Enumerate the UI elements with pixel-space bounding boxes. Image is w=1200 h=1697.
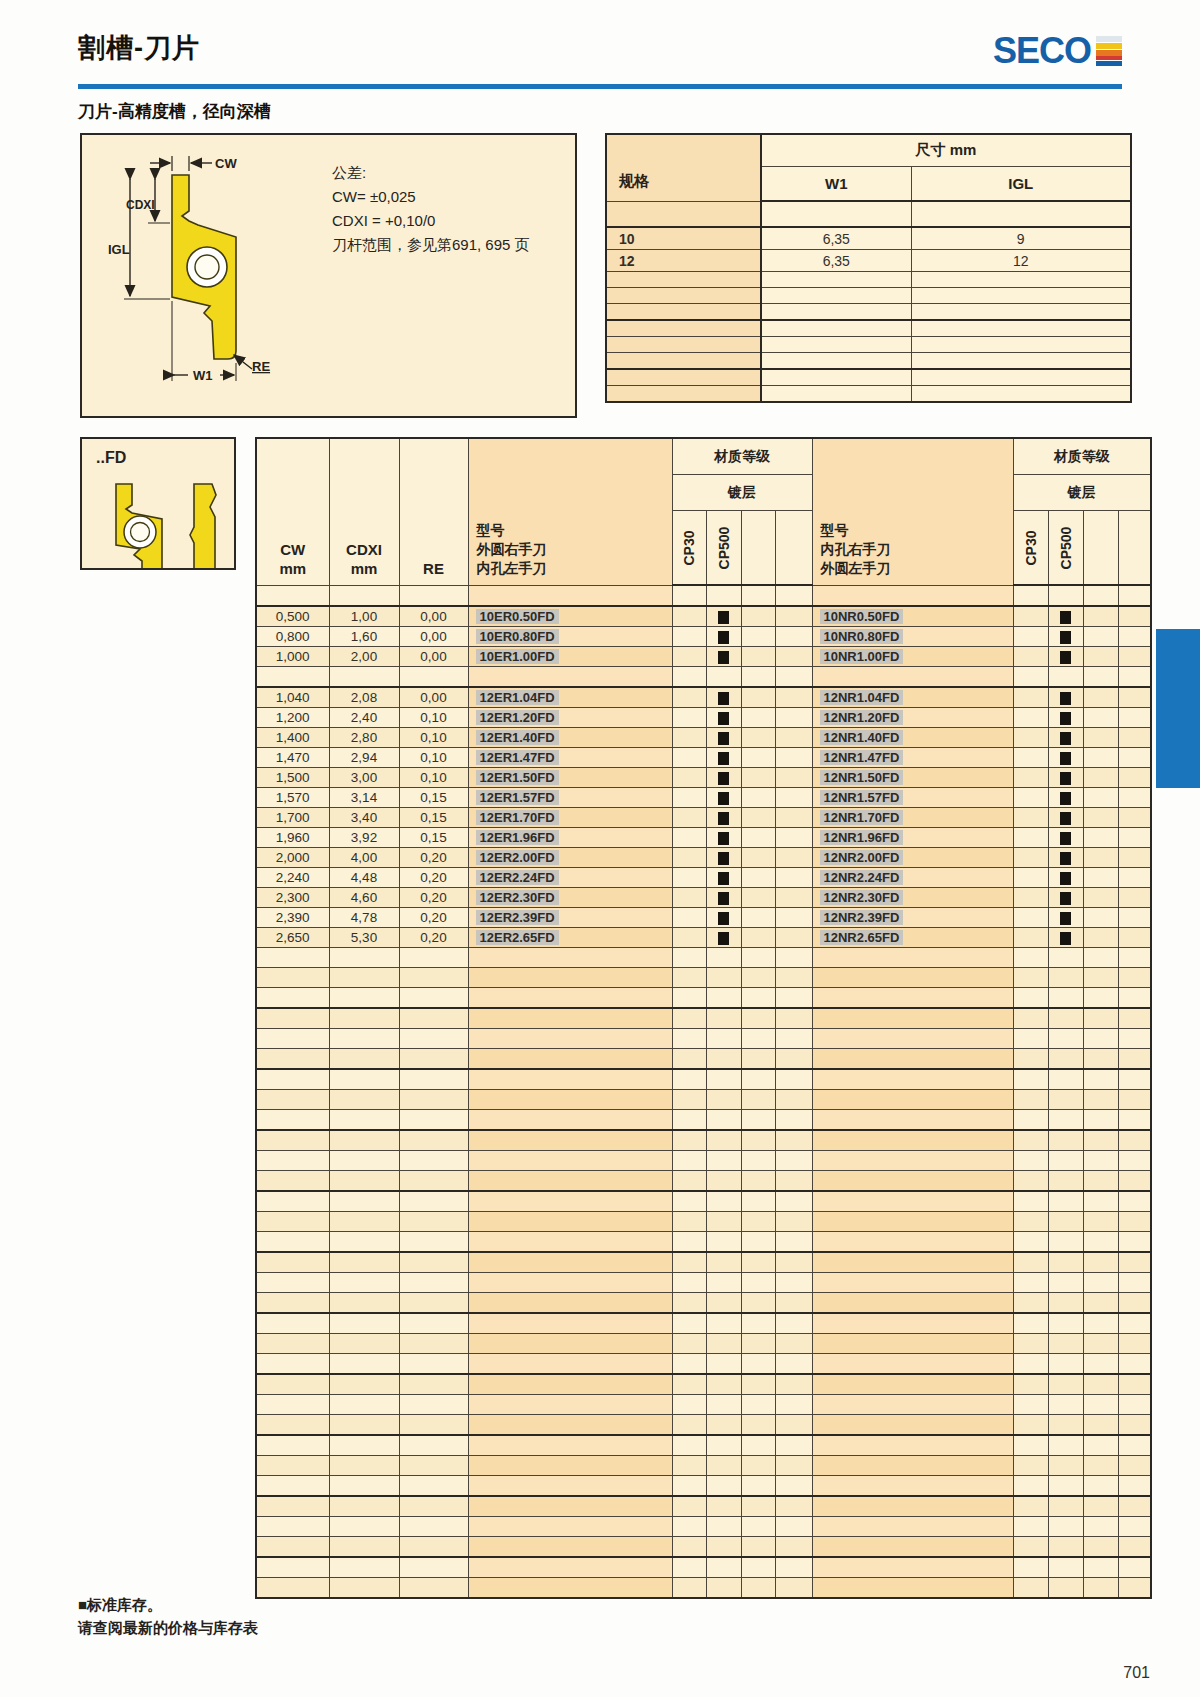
igl-cell <box>911 386 1131 403</box>
part-number-cell <box>812 1334 1013 1354</box>
footnote-line: ■标准库存。 <box>78 1593 258 1616</box>
grade-cell <box>1083 788 1118 808</box>
grade-cell <box>706 928 741 948</box>
grade-cell <box>706 988 741 1009</box>
part-number: 12ER2.65FD <box>476 930 559 945</box>
value-cell <box>256 1415 329 1436</box>
stock-square-icon <box>718 631 729 644</box>
part-number-cell: 12ER1.70FD <box>468 808 672 828</box>
grade-cell <box>672 1374 706 1395</box>
stock-square-icon <box>718 651 729 664</box>
grade-cell <box>672 1476 706 1497</box>
empty-row <box>256 1090 1151 1110</box>
value-cell: 0,20 <box>399 888 468 908</box>
grade-cell <box>672 1313 706 1334</box>
stock-square-icon <box>718 611 729 624</box>
grade-cell <box>706 1395 741 1415</box>
stock-square-icon <box>718 852 729 865</box>
part-number-cell <box>468 1354 672 1375</box>
stock-square-icon <box>718 912 729 925</box>
grade-cell <box>706 968 741 988</box>
grade-cell <box>1048 1171 1083 1192</box>
part-number-cell: 12NR2.39FD <box>812 908 1013 928</box>
grade-cell <box>706 908 741 928</box>
part-number: 12NR1.04FD <box>820 690 904 705</box>
part-number-cell <box>812 1232 1013 1253</box>
value-cell <box>329 1578 399 1599</box>
grade-cell <box>741 808 775 828</box>
table-row: 126,3512 <box>606 250 1131 272</box>
grade-cell <box>1048 1354 1083 1375</box>
empty-row <box>256 1008 1151 1029</box>
value-cell: 1,700 <box>256 808 329 828</box>
grade-cell <box>1048 1456 1083 1476</box>
grade-cell <box>706 948 741 968</box>
grade-cell <box>706 848 741 868</box>
value-cell <box>399 1334 468 1354</box>
spec-cell: 10 <box>606 227 761 250</box>
svg-text:RE: RE <box>252 359 270 374</box>
grade-cell <box>672 1008 706 1029</box>
grade-cell <box>1118 1232 1151 1253</box>
grade-cell <box>672 1293 706 1314</box>
igl-cell <box>911 272 1131 288</box>
grade-cell <box>741 1069 775 1090</box>
page-title: 割槽-刀片 <box>78 30 200 66</box>
value-cell <box>329 1090 399 1110</box>
value-cell: 0,10 <box>399 708 468 728</box>
stock-square-icon <box>718 772 729 785</box>
grade-cell <box>1048 1374 1083 1395</box>
grade-cell <box>672 908 706 928</box>
part-number-cell <box>812 667 1013 688</box>
part-number: 12NR1.96FD <box>820 830 904 845</box>
part-number-cell <box>812 1212 1013 1232</box>
part-number-cell <box>468 1130 672 1151</box>
grade-cell <box>1013 1049 1048 1070</box>
part-number: 10NR1.00FD <box>820 649 904 664</box>
grade-cell <box>1118 1090 1151 1110</box>
value-cell <box>399 1476 468 1497</box>
grade-cell <box>672 627 706 647</box>
grade-cell <box>1048 1313 1083 1334</box>
value-cell <box>399 1171 468 1192</box>
dimension-table: 规格 尺寸 mm W1 IGL 106,359126,3512 <box>605 133 1132 403</box>
grade-cell <box>1013 1374 1048 1395</box>
value-cell: 0,00 <box>399 647 468 667</box>
grade-cell <box>706 828 741 848</box>
grade-cell <box>672 1212 706 1232</box>
grade-cell <box>706 728 741 748</box>
part-number-cell: 12ER2.65FD <box>468 928 672 948</box>
grade-cell <box>1118 627 1151 647</box>
grade-cell <box>1048 768 1083 788</box>
part-number: 12ER2.30FD <box>476 890 559 905</box>
value-cell <box>329 1354 399 1375</box>
empty-row <box>606 353 1131 370</box>
grade-cell <box>775 1578 812 1599</box>
table-row: 2,3904,780,2012ER2.39FD12NR2.39FD <box>256 908 1151 928</box>
value-cell <box>399 667 468 688</box>
grade-cell <box>775 1435 812 1456</box>
grade-cell <box>1118 606 1151 627</box>
part-number: 12ER1.70FD <box>476 810 559 825</box>
value-cell <box>256 1110 329 1131</box>
part-number-cell: 10NR0.50FD <box>812 606 1013 627</box>
grade-cell <box>1118 1008 1151 1029</box>
grade-cell <box>741 687 775 708</box>
value-cell <box>256 667 329 688</box>
value-cell: 4,00 <box>329 848 399 868</box>
grade-cell <box>775 606 812 627</box>
grade-cell <box>775 988 812 1009</box>
part-number-cell <box>468 1578 672 1599</box>
value-cell <box>399 1191 468 1212</box>
value-cell <box>329 1212 399 1232</box>
grade-cell <box>672 1395 706 1415</box>
part-number-cell: 12ER1.47FD <box>468 748 672 768</box>
grade-cell <box>706 1110 741 1131</box>
part-number-cell <box>468 1537 672 1558</box>
empty-row <box>256 1049 1151 1070</box>
grade-cell <box>672 1354 706 1375</box>
value-cell <box>399 1517 468 1537</box>
empty-row <box>256 1069 1151 1090</box>
part-number-cell <box>468 1273 672 1293</box>
grade-cell <box>741 1435 775 1456</box>
value-cell <box>329 1008 399 1029</box>
grade-cell <box>706 708 741 728</box>
grade-cell <box>672 1090 706 1110</box>
value-cell: 4,60 <box>329 888 399 908</box>
grade-cell <box>741 1334 775 1354</box>
grade-cell <box>1083 687 1118 708</box>
table-row: 1,4002,800,1012ER1.40FD12NR1.40FD <box>256 728 1151 748</box>
value-cell <box>329 1029 399 1049</box>
grade-cell <box>1013 606 1048 627</box>
empty-row <box>256 585 1151 606</box>
grade-cell <box>1118 1171 1151 1192</box>
dimension-table-body: 106,359126,3512 <box>606 201 1131 402</box>
grade-cell <box>1118 1191 1151 1212</box>
grade-cell <box>1048 1415 1083 1436</box>
grade-cell <box>706 1456 741 1476</box>
table-row: 1,9603,920,1512ER1.96FD12NR1.96FD <box>256 828 1151 848</box>
table-row: 1,0402,080,0012ER1.04FD12NR1.04FD <box>256 687 1151 708</box>
part-number-cell <box>468 948 672 968</box>
value-cell <box>399 1313 468 1334</box>
part-number-cell <box>812 1354 1013 1375</box>
seco-logo-mark-icon <box>1096 36 1122 66</box>
grade-cell <box>706 1557 741 1578</box>
part-number-cell: 10ER0.80FD <box>468 627 672 647</box>
grade-cell <box>1118 1212 1151 1232</box>
grade-cell <box>1048 848 1083 868</box>
grade-cell <box>741 1090 775 1110</box>
part-number-cell <box>468 1110 672 1131</box>
empty-row <box>256 1496 1151 1517</box>
part-number: 12ER1.40FD <box>476 730 559 745</box>
part-number-cell <box>812 1456 1013 1476</box>
grade-cell <box>672 1435 706 1456</box>
grade-cell <box>1048 1069 1083 1090</box>
grade-cell <box>1048 1496 1083 1517</box>
part-number-cell: 12NR1.57FD <box>812 788 1013 808</box>
grade-cell <box>1083 868 1118 888</box>
grade-cell <box>775 948 812 968</box>
stock-square-icon <box>1060 852 1071 865</box>
value-cell: 1,570 <box>256 788 329 808</box>
grade-cell <box>1083 828 1118 848</box>
stock-square-icon <box>1060 792 1071 805</box>
grade-cell <box>672 1537 706 1558</box>
value-cell: 2,390 <box>256 908 329 928</box>
stock-square-icon <box>1060 832 1071 845</box>
grade-cell <box>775 1029 812 1049</box>
grade-cell <box>1083 768 1118 788</box>
part-number: 12NR1.70FD <box>820 810 904 825</box>
part-number-cell <box>812 1171 1013 1192</box>
grade-cell <box>775 1415 812 1436</box>
value-cell <box>256 1008 329 1029</box>
value-cell <box>399 1293 468 1314</box>
grade-cell <box>1083 948 1118 968</box>
grade-cell <box>741 748 775 768</box>
grade-cell <box>1013 1415 1048 1436</box>
grade-empty-header <box>775 511 812 586</box>
part-number-cell <box>468 1212 672 1232</box>
grade-cell <box>1118 728 1151 748</box>
value-cell: 2,240 <box>256 868 329 888</box>
value-cell <box>256 1212 329 1232</box>
grade-cell <box>1013 808 1048 828</box>
empty-row <box>256 1557 1151 1578</box>
grade-cell <box>672 1557 706 1578</box>
grade-cp30-header: CP30 <box>672 511 706 586</box>
value-cell <box>329 1476 399 1497</box>
grade-cell <box>706 1090 741 1110</box>
cdxi-column-header: CDXImm <box>329 438 399 585</box>
empty-row <box>256 1293 1151 1314</box>
value-cell: 0,20 <box>399 928 468 948</box>
value-cell <box>329 1171 399 1192</box>
stock-square-icon <box>718 792 729 805</box>
part-number-cell <box>468 1557 672 1578</box>
value-cell <box>399 988 468 1009</box>
igl-cell: 9 <box>911 227 1131 250</box>
grade-cell <box>741 988 775 1009</box>
grade-cell <box>1013 1293 1048 1314</box>
stock-square-icon <box>1060 892 1071 905</box>
grade-cell <box>1013 828 1048 848</box>
empty-row <box>256 1476 1151 1497</box>
grade-cell <box>1048 728 1083 748</box>
grade-cell <box>775 1069 812 1090</box>
grade-cell <box>741 1151 775 1171</box>
value-cell: 2,000 <box>256 848 329 868</box>
part-number-cell <box>812 1293 1013 1314</box>
grade-cell <box>775 647 812 667</box>
grade-cell <box>1048 1395 1083 1415</box>
value-cell <box>256 1090 329 1110</box>
grade-cell <box>1083 1557 1118 1578</box>
grade-cell <box>1083 988 1118 1009</box>
part-number-cell: 12NR2.65FD <box>812 928 1013 948</box>
value-cell: 1,60 <box>329 627 399 647</box>
stock-square-icon <box>718 712 729 725</box>
value-cell <box>399 1252 468 1273</box>
grade-cell <box>741 1293 775 1314</box>
grade-cell <box>1013 988 1048 1009</box>
grade-cell <box>1083 1110 1118 1131</box>
part-number-cell <box>812 1069 1013 1090</box>
grade-cell <box>775 1334 812 1354</box>
re-column-header: RE <box>399 438 468 585</box>
grade-cell <box>1013 928 1048 948</box>
grade-cell <box>1083 585 1118 606</box>
part-number: 12NR2.24FD <box>820 870 904 885</box>
grade-cell <box>706 1191 741 1212</box>
value-cell <box>256 585 329 606</box>
value-cell <box>256 1395 329 1415</box>
part-number-cell <box>468 1293 672 1314</box>
grade-group-header: 材质等级 <box>672 438 812 475</box>
stock-square-icon <box>718 732 729 745</box>
value-cell: 1,500 <box>256 768 329 788</box>
part-number-cell <box>468 1191 672 1212</box>
value-cell <box>329 1313 399 1334</box>
grade-cell <box>672 808 706 828</box>
grade-cell <box>741 1374 775 1395</box>
catalog-page: 割槽-刀片 SECO 刀片-高精度槽，径向深槽 <box>0 0 1200 1697</box>
grade-cell <box>706 647 741 667</box>
value-cell <box>399 1110 468 1131</box>
value-cell <box>329 1496 399 1517</box>
grade-cell <box>706 1476 741 1497</box>
part-number-cell <box>468 585 672 606</box>
value-cell <box>399 1090 468 1110</box>
grade-cell <box>1013 1212 1048 1232</box>
empty-row <box>606 288 1131 304</box>
grade-cell <box>1013 1151 1048 1171</box>
grade-cell <box>1013 687 1048 708</box>
grade-cell <box>1083 1049 1118 1070</box>
part-number-cell <box>468 1496 672 1517</box>
grade-cell <box>741 1191 775 1212</box>
grade-cell <box>741 948 775 968</box>
part-number-cell: 12ER2.39FD <box>468 908 672 928</box>
tolerance-line: 刀杆范围，参见第691, 695 页 <box>332 233 530 257</box>
grade-cell <box>741 788 775 808</box>
grade-cell <box>1118 988 1151 1009</box>
part-number-cell: 12NR1.50FD <box>812 768 1013 788</box>
grade-cell <box>706 1313 741 1334</box>
grade-cell <box>1013 768 1048 788</box>
grade-cell <box>1048 585 1083 606</box>
grade-cell <box>1083 1537 1118 1558</box>
table-row: 1,2002,400,1012ER1.20FD12NR1.20FD <box>256 708 1151 728</box>
igl-cell <box>911 369 1131 386</box>
grade-cell <box>672 708 706 728</box>
value-cell: 1,400 <box>256 728 329 748</box>
grade-cell <box>672 1110 706 1131</box>
part-number: 12NR2.65FD <box>820 930 904 945</box>
page-index-tab[interactable] <box>1156 629 1200 788</box>
part-number-cell: 12NR1.04FD <box>812 687 1013 708</box>
table-row: 1,5003,000,1012ER1.50FD12NR1.50FD <box>256 768 1151 788</box>
stock-square-icon <box>1060 692 1071 705</box>
grade-cell <box>775 1273 812 1293</box>
grade-cell <box>1013 788 1048 808</box>
part-number-cell: 12NR1.96FD <box>812 828 1013 848</box>
part-number: 12NR1.40FD <box>820 730 904 745</box>
value-cell <box>399 1578 468 1599</box>
grade-cell <box>1118 687 1151 708</box>
value-cell <box>256 1557 329 1578</box>
model-right-column-header: 型号 外圆右手刀 内孔左手刀 <box>468 438 672 585</box>
part-number-cell <box>468 1517 672 1537</box>
stock-square-icon <box>718 872 729 885</box>
value-cell <box>329 667 399 688</box>
table-row: 1,7003,400,1512ER1.70FD12NR1.70FD <box>256 808 1151 828</box>
part-number: 12NR2.39FD <box>820 910 904 925</box>
grade-cell <box>672 928 706 948</box>
part-number: 12ER1.20FD <box>476 710 559 725</box>
stock-square-icon <box>718 812 729 825</box>
grade-cell <box>706 808 741 828</box>
empty-row <box>256 1456 1151 1476</box>
grade-cell <box>672 988 706 1009</box>
grade-cell <box>741 1354 775 1375</box>
part-number-cell <box>812 1435 1013 1456</box>
grade-cell <box>1083 1232 1118 1253</box>
value-cell <box>399 1557 468 1578</box>
grade-cell <box>775 1212 812 1232</box>
grade-cell <box>741 1456 775 1476</box>
value-cell: 1,040 <box>256 687 329 708</box>
stock-square-icon <box>1060 872 1071 885</box>
value-cell: 5,30 <box>329 928 399 948</box>
grade-cell <box>741 868 775 888</box>
grade-cell <box>741 1476 775 1497</box>
grade-cell <box>1083 928 1118 948</box>
grade-cell <box>672 1191 706 1212</box>
grade-cell <box>1083 1354 1118 1375</box>
grade-cell <box>1118 1130 1151 1151</box>
grade-cell <box>1118 788 1151 808</box>
main-table-body: 0,5001,000,0010ER0.50FD10NR0.50FD0,8001,… <box>256 585 1151 1598</box>
grade-cell <box>1048 968 1083 988</box>
part-number: 12ER1.96FD <box>476 830 559 845</box>
empty-row <box>606 337 1131 353</box>
part-number-cell <box>812 1496 1013 1517</box>
grade-cell <box>1048 888 1083 908</box>
empty-row <box>256 1273 1151 1293</box>
stock-square-icon <box>1060 611 1071 624</box>
tolerance-line: CW= ±0,025 <box>332 185 530 209</box>
stock-square-icon <box>718 752 729 765</box>
spec-cell <box>606 353 761 370</box>
value-cell <box>399 1395 468 1415</box>
grade-cell <box>1083 1069 1118 1090</box>
grade-cell <box>672 667 706 688</box>
grade-cell <box>1118 1029 1151 1049</box>
grade-cell <box>1083 647 1118 667</box>
value-cell <box>399 1212 468 1232</box>
grade-cell <box>672 1334 706 1354</box>
grade-cell <box>1048 988 1083 1009</box>
part-number: 12NR2.00FD <box>820 850 904 865</box>
